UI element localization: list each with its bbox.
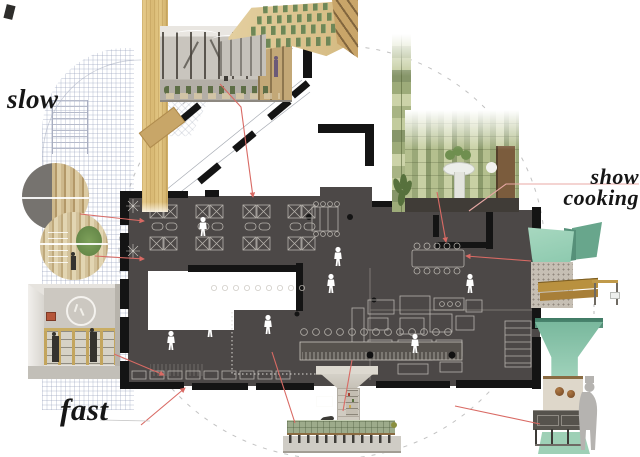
leader-fast-to-plan: [141, 388, 185, 425]
hood-side-face: [572, 222, 602, 260]
label-show-cooking: show cooking: [563, 166, 639, 208]
seated-figure: [71, 256, 76, 270]
corner-mark: [3, 4, 15, 20]
table-row: [166, 93, 280, 99]
stool: [610, 292, 620, 299]
drawer: [537, 415, 559, 426]
counter-line: [40, 243, 108, 245]
leader-plan-to-bench: [272, 352, 295, 423]
wall-lamp: [320, 390, 326, 396]
mint-hood-front: [528, 226, 574, 264]
ceiling-baffles-perspective: [214, 0, 358, 78]
entrance-render: [28, 284, 120, 379]
plan-void: [148, 271, 300, 330]
bathroom-render: [405, 110, 519, 212]
column-taper: [316, 374, 378, 388]
bathroom-door: [496, 146, 515, 204]
counter-line: [22, 197, 89, 199]
globe-lamp: [486, 162, 497, 173]
bench-leg: [535, 429, 537, 444]
plan-furniture: [132, 202, 531, 379]
slat-screen: [48, 232, 68, 266]
label-show-line1: show: [563, 166, 639, 187]
indoor-tree: [76, 226, 102, 256]
green-bench-render: [281, 416, 403, 454]
bathroom-floor-band: [405, 198, 519, 212]
bottle-shelf: [346, 390, 358, 416]
bar-column-dot: [367, 352, 374, 359]
plan-floor-slab: [128, 187, 540, 386]
bench-leg: [551, 429, 553, 444]
side-wall: [28, 284, 44, 379]
right-column: [115, 284, 120, 379]
presentation-board: slow fast show cooking: [0, 0, 640, 457]
chef-silhouette: [573, 374, 605, 456]
interior-vignette-circle-2: [40, 212, 108, 280]
label-slow: slow: [7, 84, 59, 115]
bar-column-dot: [449, 352, 456, 359]
restaurant-logo-circle: [66, 296, 96, 326]
green-tile-slab: [287, 420, 395, 435]
plan-people: [167, 217, 474, 353]
table-leg: [594, 283, 596, 305]
leader-plan-to-hood2: [455, 406, 540, 424]
leader-hood1-to-plan: [466, 256, 531, 261]
column-capital: [316, 366, 378, 375]
gray-wall-fragment: [220, 34, 266, 76]
fade-to-white: [405, 110, 519, 150]
show-cooking-station-1: [524, 218, 624, 310]
sink-plant: [461, 150, 471, 160]
copper-pot: [555, 387, 564, 396]
entrance-floor: [28, 366, 120, 379]
label-show-line2: cooking: [563, 187, 639, 208]
olive-bowl: [391, 422, 397, 428]
side-table-top: [592, 280, 618, 283]
label-fast: fast: [60, 392, 109, 428]
bench-leg: [567, 429, 569, 444]
wall-table-sketch: [316, 396, 333, 407]
orange-sign: [46, 312, 56, 321]
bar-counter: [300, 342, 462, 360]
visitor-figure: [52, 336, 59, 362]
foreground-plant: [392, 174, 412, 214]
visitor-figure: [90, 332, 97, 362]
show-cooking-station-2: [531, 314, 615, 456]
bar-counter-hatch: [302, 352, 460, 360]
